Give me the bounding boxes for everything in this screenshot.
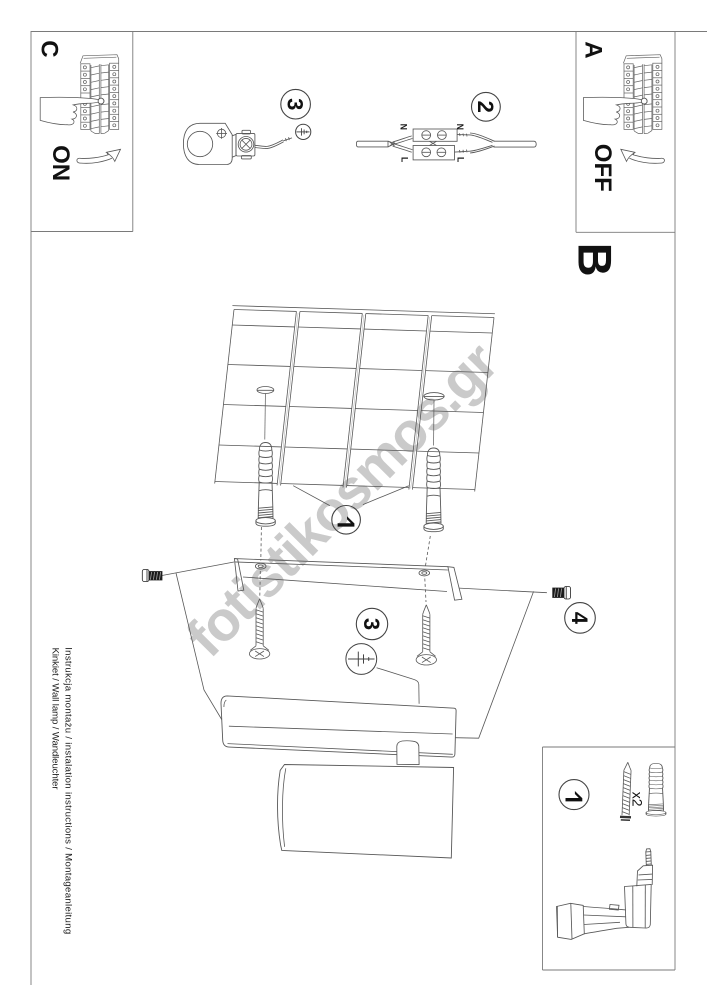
svg-text:Kinkiet / Wall lamp / Wandleuc: Kinkiet / Wall lamp / Wandleuchter	[49, 648, 60, 791]
svg-text:L: L	[399, 157, 409, 163]
svg-text:4: 4	[567, 612, 592, 625]
svg-text:N: N	[455, 124, 465, 130]
svg-text:A: A	[579, 41, 606, 58]
svg-text:3: 3	[283, 98, 308, 110]
svg-text:B: B	[569, 243, 622, 277]
svg-text:x2: x2	[630, 792, 646, 807]
svg-text:2: 2	[473, 101, 498, 113]
svg-text:ON: ON	[47, 145, 74, 181]
svg-text:Instrukcja montażu / instalati: Instrukcja montażu / instalation instruc…	[63, 647, 74, 934]
svg-text:3: 3	[359, 618, 384, 630]
svg-text:C: C	[36, 40, 63, 57]
svg-text:OFF: OFF	[589, 144, 616, 192]
svg-text:N: N	[399, 124, 409, 130]
svg-text:L: L	[455, 157, 465, 163]
